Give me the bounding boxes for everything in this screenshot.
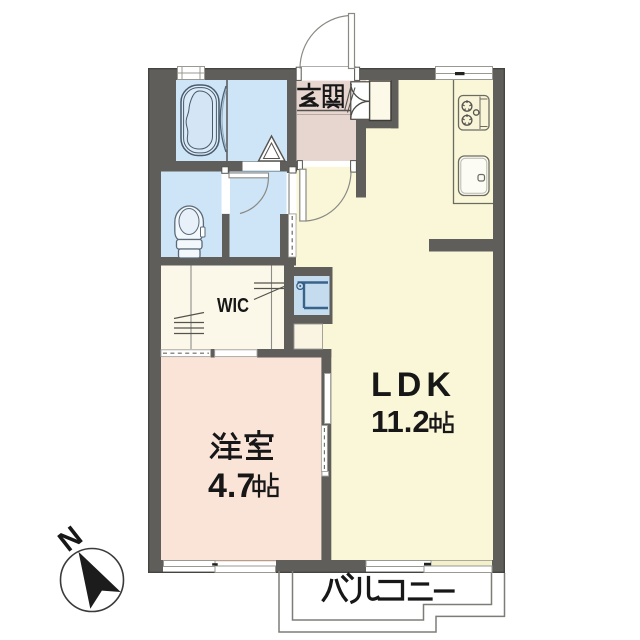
svg-text:4.7: 4.7: [208, 467, 255, 505]
svg-text:11.2: 11.2: [371, 404, 430, 439]
svg-text:LDK: LDK: [371, 366, 456, 404]
svg-text:WIC: WIC: [217, 295, 249, 317]
